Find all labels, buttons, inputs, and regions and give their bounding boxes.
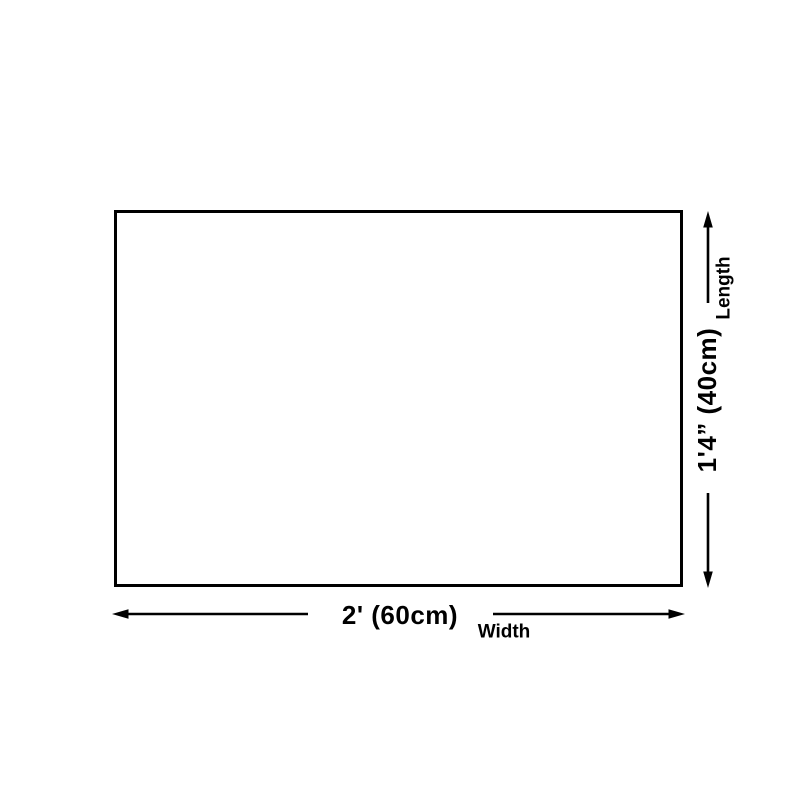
- length-dimension-value: 1'4” (40cm): [694, 328, 720, 473]
- width-axis-label: Width: [478, 623, 531, 642]
- width-arrow-left-icon: [112, 607, 308, 621]
- width-dimension-value: 2' (60cm): [342, 602, 458, 628]
- length-axis-label: Length: [715, 256, 734, 319]
- product-outline: [114, 210, 683, 587]
- product-dimension-diagram: Length 1'4” (40cm) 2' (60cm) Width: [0, 0, 800, 800]
- length-arrow-down-icon: [701, 493, 715, 588]
- width-arrow-right-icon: [493, 607, 685, 621]
